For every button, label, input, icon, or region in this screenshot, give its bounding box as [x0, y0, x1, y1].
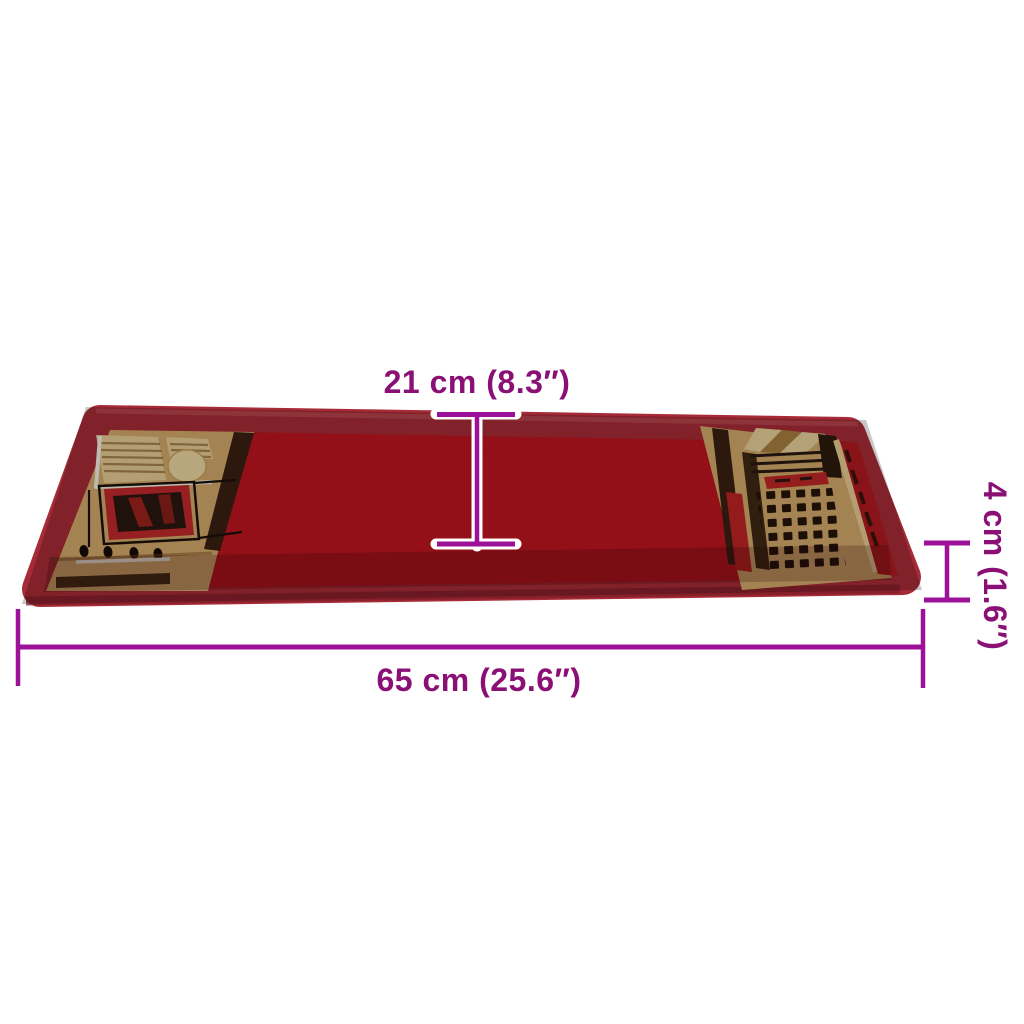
thickness-dimension-marker: [924, 543, 970, 600]
depth-dimension-label: 21 cm (8.3″): [384, 364, 571, 400]
width-dimension-label: 65 cm (25.6″): [376, 662, 581, 698]
product-dimension-figure: 21 cm (8.3″) 65 cm (25.6″) 4 cm (1.6″): [0, 0, 1024, 1024]
thickness-dimension-label: 4 cm (1.6″): [977, 482, 1013, 650]
product-image: 21 cm (8.3″) 65 cm (25.6″) 4 cm (1.6″): [0, 0, 1024, 1024]
